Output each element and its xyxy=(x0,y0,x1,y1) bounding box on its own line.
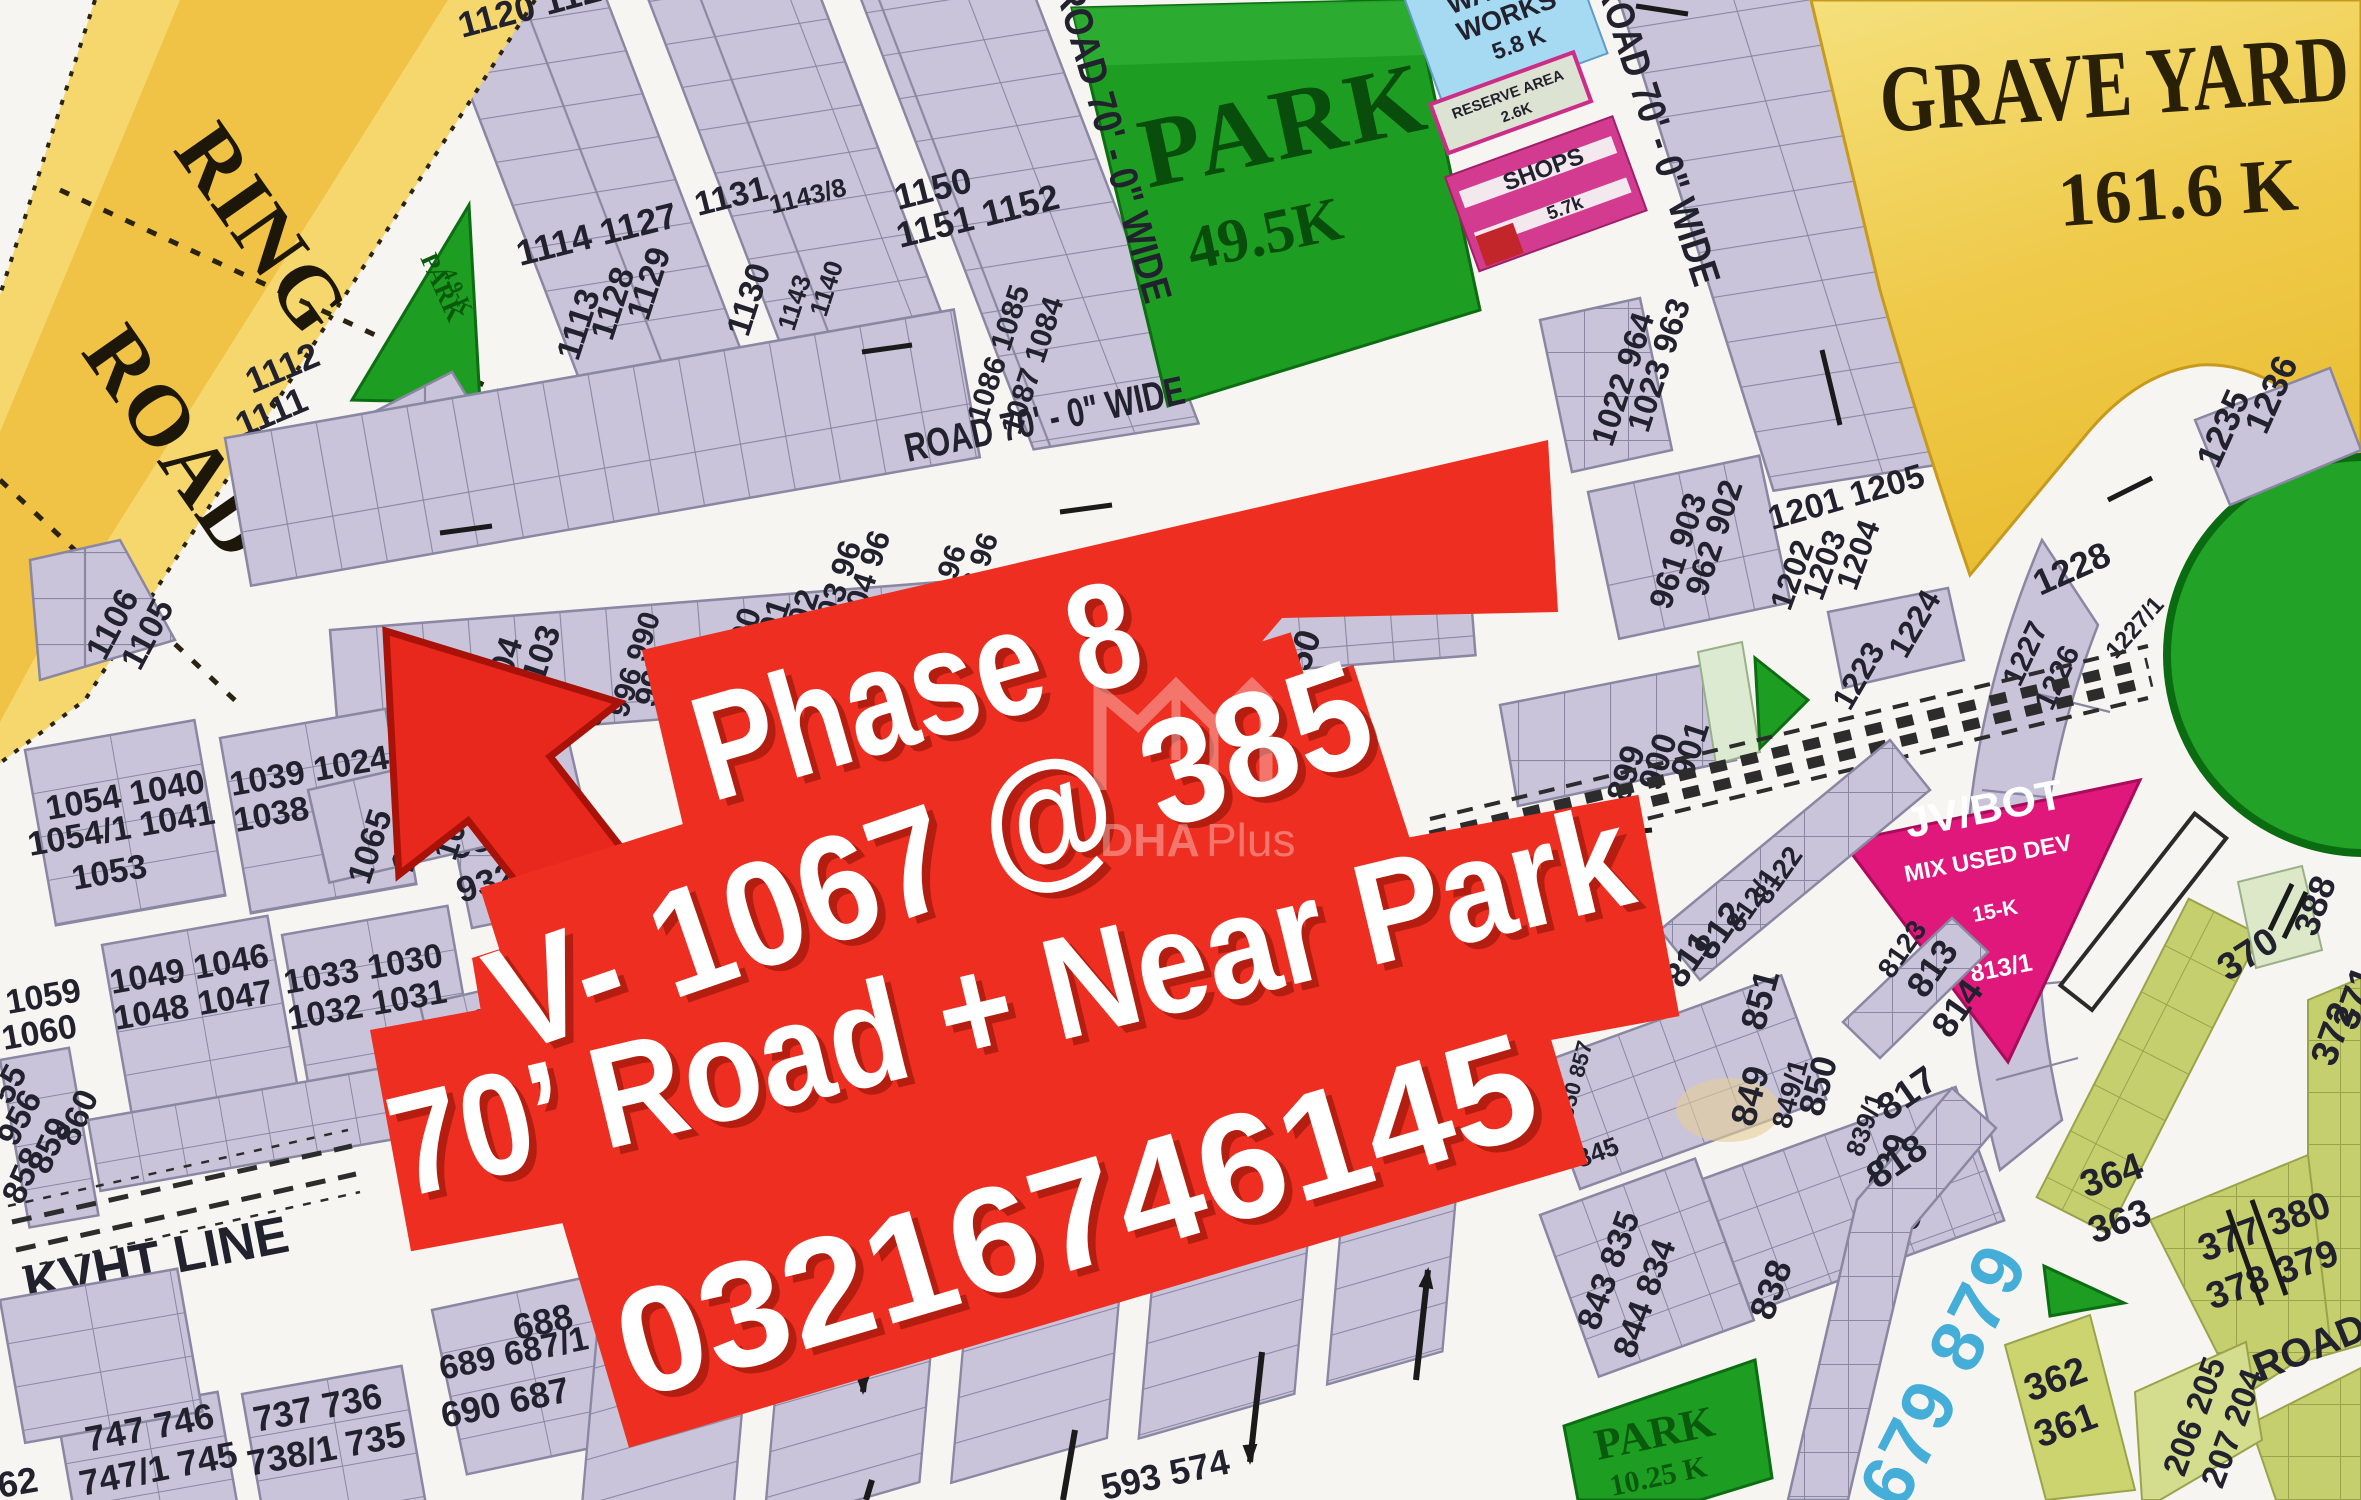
svg-text:DHA: DHA xyxy=(1100,814,1200,866)
svg-text:161.6 K: 161.6 K xyxy=(2055,142,2300,243)
svg-text:62: 62 xyxy=(0,1459,41,1500)
svg-text:Plus: Plus xyxy=(1206,814,1295,866)
